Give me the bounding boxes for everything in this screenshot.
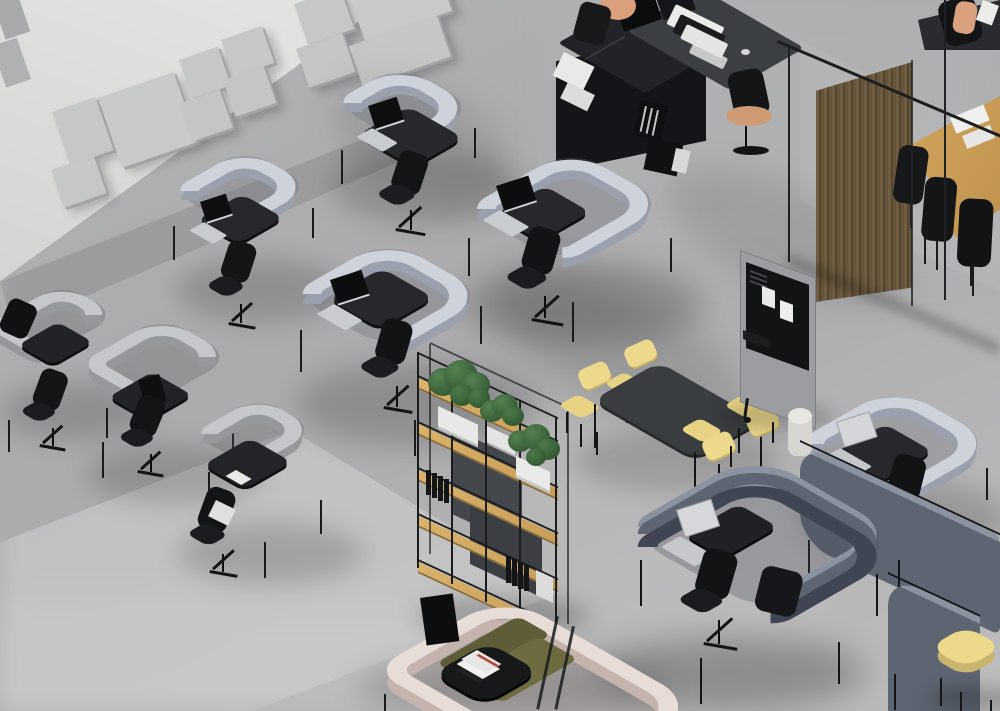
shelf-post [567,410,569,624]
chair-leg [760,438,762,461]
task-chair-seat-tan [726,106,772,126]
table-leg [594,404,596,448]
chair-stem [745,126,747,148]
chair-base [733,146,769,155]
pod-leg [986,468,988,500]
plant-foliage [526,448,546,466]
pod-leg [264,542,266,578]
office-scene: Isometric office interior with acoustic … [0,0,1000,711]
pod-leg [320,500,322,534]
glass-mullion [944,0,946,300]
pod-leg [341,150,343,184]
chair-leg [566,412,568,433]
caster-wheel [744,417,751,423]
pod-leg [474,128,476,158]
pod-leg [300,330,302,372]
shelf-binder [506,556,511,583]
pouf-leg [940,678,942,706]
pod-leg [102,442,104,478]
pod-leg [8,420,10,452]
plant-foliage [502,406,524,426]
meeting-chair [920,176,957,243]
chair-leg [580,424,582,447]
pod-shadow [462,262,702,346]
chair-leg [972,264,974,296]
chair-leg [936,240,938,270]
glass-mullion [911,60,913,306]
chair-leg [694,452,696,477]
pod-leg [468,238,470,276]
shelf-binder [518,562,523,589]
pod-leg [640,560,642,606]
shelf-binder [438,476,443,501]
chair-leg [596,432,598,455]
pod-leg [106,408,108,438]
shelf-binder [444,479,449,503]
pouf-leg [960,692,962,711]
pod-leg [838,642,840,684]
pod-leg [670,238,672,272]
pod-leg [312,208,314,238]
shelf-post [417,352,419,568]
pod-leg [384,694,386,711]
shelf-binder [524,565,529,591]
pod-leg [894,674,896,710]
pod-leg [414,420,416,456]
chair-leg [730,446,732,467]
tv-screen [420,593,459,645]
meeting-chair [956,198,994,268]
pod-leg [572,302,574,342]
white-stool-top [788,408,812,424]
chair-leg [738,428,740,453]
pod-leg [480,306,482,344]
glass-mullion [788,46,790,262]
pod-leg [700,658,702,704]
pouf-leg [990,700,992,711]
pod-leg [173,226,175,260]
shelf-binder [432,473,437,498]
shelf-binder [426,470,431,495]
pod-leg [876,574,878,616]
mouse [741,49,750,55]
shelf-binder [512,559,517,586]
